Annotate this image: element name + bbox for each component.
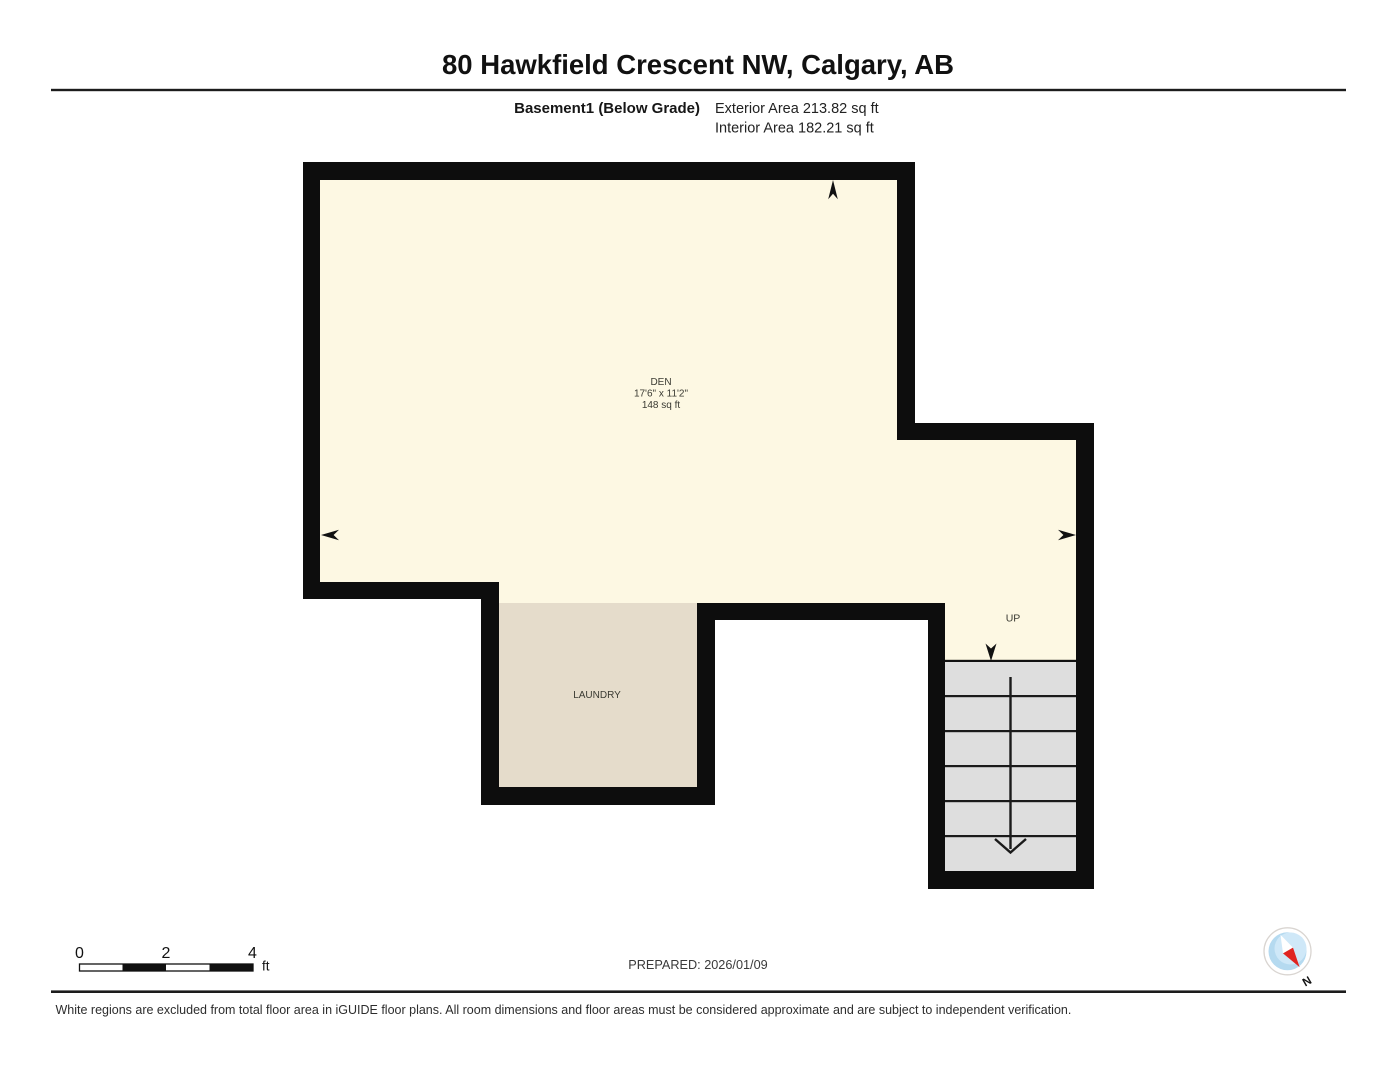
svg-text:148 sq ft: 148 sq ft — [642, 400, 681, 411]
svg-text:Exterior Area 213.82 sq ft: Exterior Area 213.82 sq ft — [715, 101, 879, 117]
svg-text:2: 2 — [162, 945, 171, 962]
svg-text:Basement1 (Below Grade): Basement1 (Below Grade) — [514, 100, 700, 117]
svg-text:Interior Area 182.21 sq ft: Interior Area 182.21 sq ft — [715, 121, 874, 137]
svg-text:4: 4 — [248, 945, 257, 962]
svg-text:DEN: DEN — [650, 377, 671, 388]
svg-text:LAUNDRY: LAUNDRY — [573, 690, 621, 701]
svg-text:ft: ft — [262, 959, 270, 974]
svg-text:PREPARED: 2026/01/09: PREPARED: 2026/01/09 — [628, 958, 767, 972]
svg-text:17'6" x 11'2": 17'6" x 11'2" — [634, 389, 689, 400]
svg-text:UP: UP — [1006, 613, 1021, 625]
svg-text:0: 0 — [75, 945, 84, 962]
svg-text:80 Hawkfield Crescent NW, Calg: 80 Hawkfield Crescent NW, Calgary, AB — [442, 49, 954, 80]
svg-text:White regions are excluded fro: White regions are excluded from total fl… — [56, 1003, 1072, 1017]
